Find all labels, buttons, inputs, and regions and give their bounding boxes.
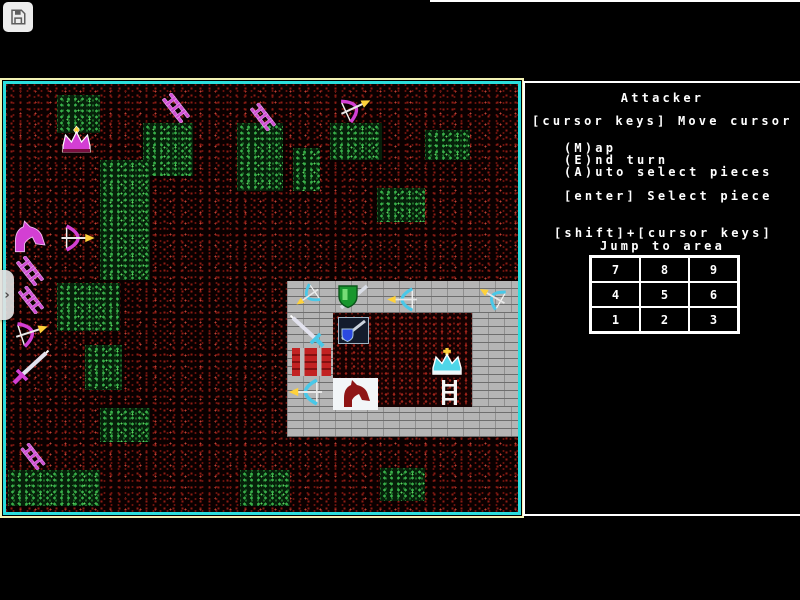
attacker-ladder-piece[interactable] xyxy=(248,103,278,131)
hint-select-piece: [enter] Select piece xyxy=(564,189,773,203)
chevron-right-icon: › xyxy=(4,288,9,303)
grass-patch xyxy=(240,470,290,506)
jump-cell-3: 3 xyxy=(689,307,738,332)
drawer-toggle-button[interactable]: › xyxy=(0,270,14,320)
defender-ladder-piece[interactable] xyxy=(440,380,459,405)
defender-bow-piece[interactable] xyxy=(287,378,326,406)
jump-cell-6: 6 xyxy=(689,282,738,307)
defender-bow-piece[interactable] xyxy=(386,287,420,312)
defender-horse-tile[interactable] xyxy=(333,378,378,410)
grass-patch xyxy=(57,283,120,331)
jump-cell-5: 5 xyxy=(640,282,689,307)
grass-patch xyxy=(100,408,150,442)
map-inner-border xyxy=(3,81,521,515)
hint-move-cursor: [cursor keys] Move cursor xyxy=(532,114,793,128)
game-map-canvas[interactable] xyxy=(6,84,518,512)
grass-patch xyxy=(330,123,382,160)
attacker-bow-piece[interactable] xyxy=(334,88,376,127)
floppy-disk-icon xyxy=(9,8,27,26)
attacker-crown-piece[interactable] xyxy=(58,125,95,155)
hint-auto-select-command: (A)uto select pieces xyxy=(564,165,773,179)
attacker-ladder-piece[interactable] xyxy=(18,443,48,470)
jump-cell-1: 1 xyxy=(591,307,640,332)
castle-wall-bottom xyxy=(287,407,518,437)
attacker-bow-piece[interactable] xyxy=(10,313,53,351)
attacker-sword-piece[interactable] xyxy=(10,350,50,386)
jump-cell-8: 8 xyxy=(640,257,689,282)
grass-patch xyxy=(237,123,283,191)
grass-patch xyxy=(293,148,320,191)
attacker-knight-piece[interactable] xyxy=(8,220,50,254)
grass-patch xyxy=(100,160,150,280)
grass-patch xyxy=(377,188,425,222)
attacker-ladder-piece[interactable] xyxy=(14,256,46,286)
defender-crown-piece[interactable] xyxy=(430,348,464,376)
grass-patch xyxy=(8,470,100,506)
grass-patch xyxy=(143,123,193,176)
attacker-ladder-piece[interactable] xyxy=(160,93,192,123)
hint-shift-jump: [shift]+[cursor keys] xyxy=(554,226,773,240)
attacker-ladder-piece[interactable] xyxy=(16,286,46,314)
defender-sword-piece[interactable] xyxy=(288,315,328,349)
defender-shield-sword-piece[interactable] xyxy=(336,283,370,312)
grass-patch xyxy=(425,130,470,160)
jump-cell-4: 4 xyxy=(591,282,640,307)
attacker-bow-piece[interactable] xyxy=(58,224,96,252)
defender-shield-tile[interactable] xyxy=(338,317,369,344)
castle-wall-right xyxy=(472,313,518,407)
jump-cell-2: 2 xyxy=(640,307,689,332)
map-frame xyxy=(0,78,524,518)
hint-jump-to-area: Jump to area xyxy=(525,239,800,253)
jump-area-grid: 7 8 9 4 5 6 1 2 3 xyxy=(589,255,740,334)
grass-patch xyxy=(85,345,122,390)
jump-cell-9: 9 xyxy=(689,257,738,282)
top-border-line xyxy=(430,0,800,2)
save-button[interactable] xyxy=(3,2,33,32)
panel-title: Attacker xyxy=(525,91,800,105)
jump-cell-7: 7 xyxy=(591,257,640,282)
attacker-info-panel: Attacker [cursor keys] Move cursor (M)ap… xyxy=(523,81,800,516)
grass-patch xyxy=(380,468,425,501)
defender-wall-block[interactable] xyxy=(292,348,331,376)
